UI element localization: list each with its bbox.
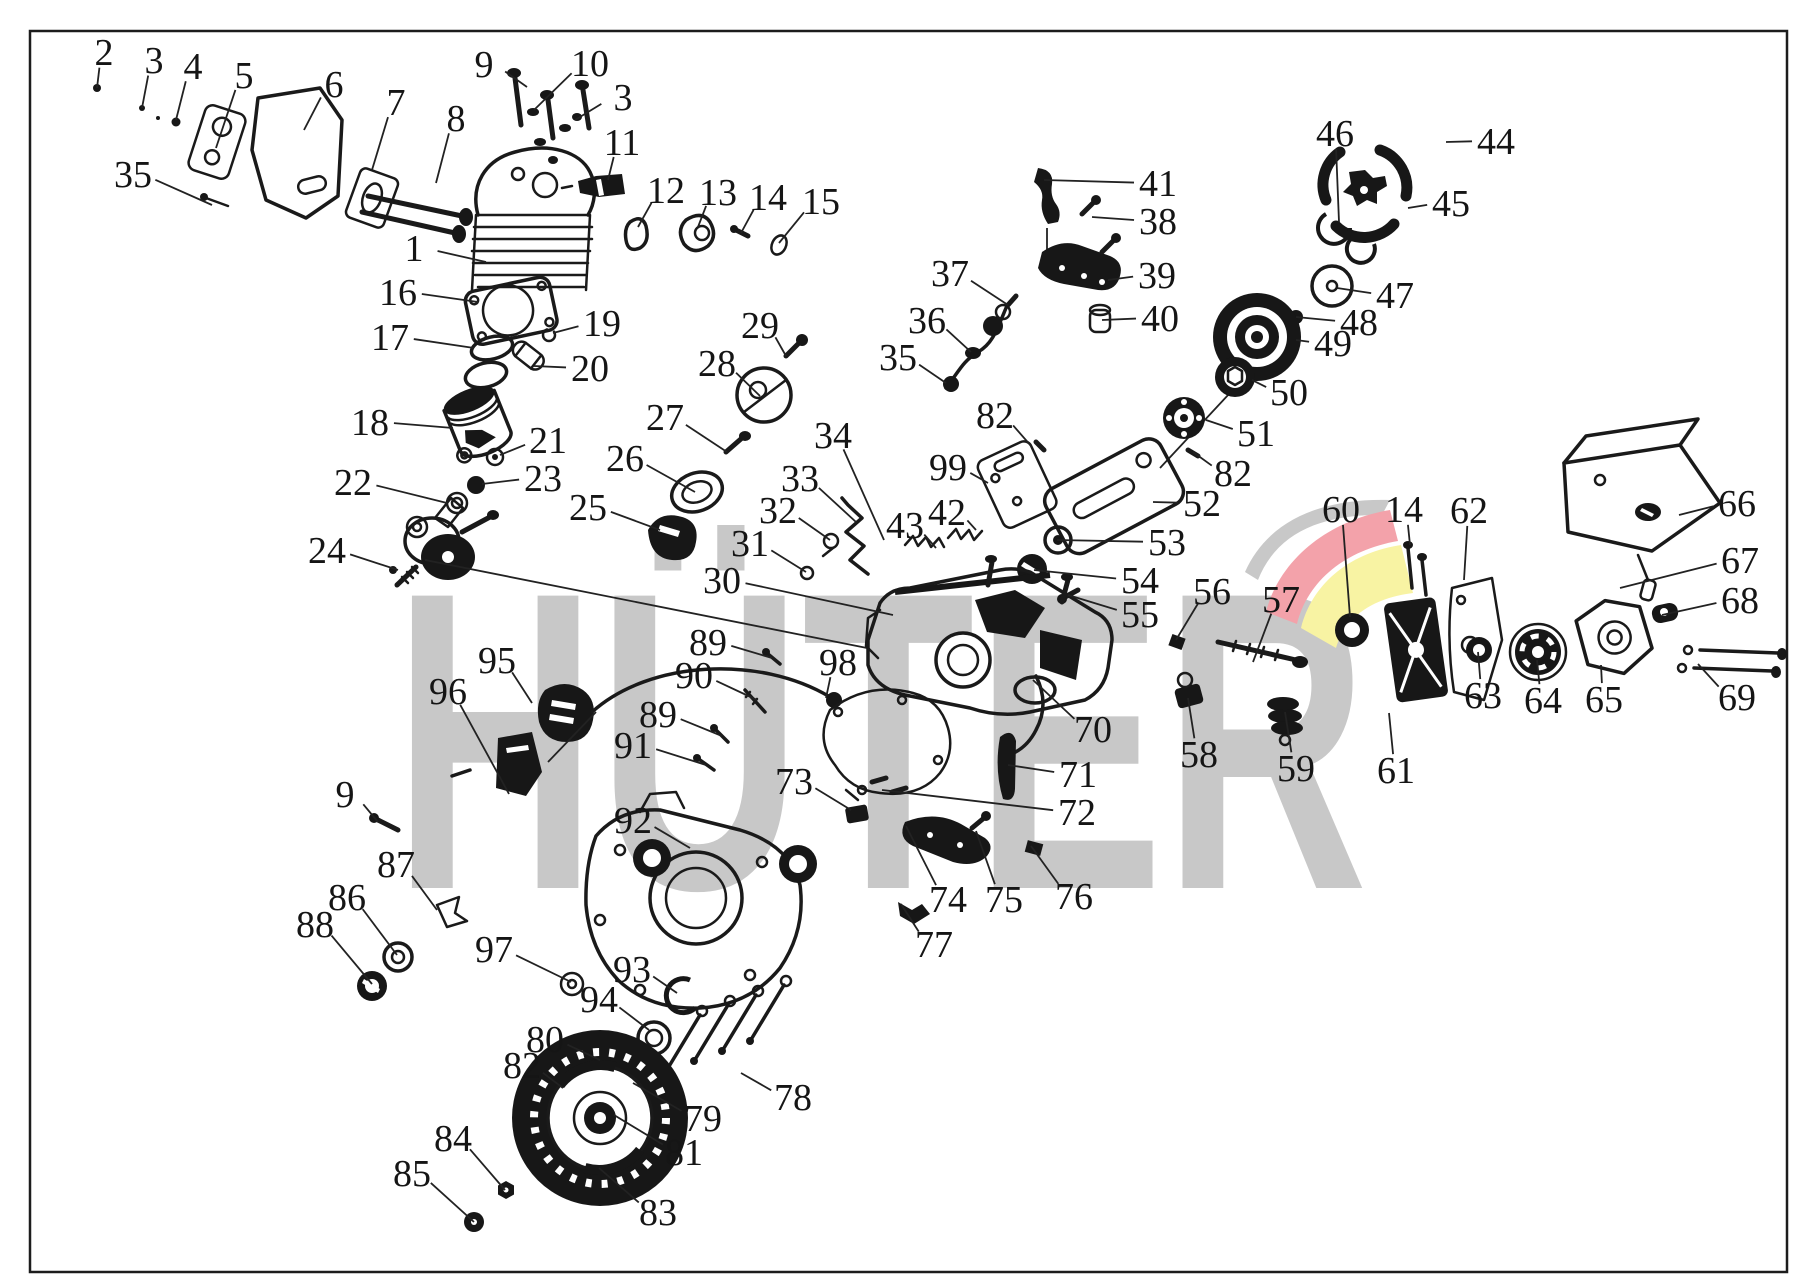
callout-leader-78 xyxy=(741,1073,771,1090)
callout-45: 45 xyxy=(1408,183,1470,225)
callout-leader-35 xyxy=(919,365,946,383)
callout-leader-8 xyxy=(436,133,449,183)
callout-leader-6 xyxy=(304,97,321,130)
callout-number-52: 52 xyxy=(1183,483,1221,525)
callout-number-40: 40 xyxy=(1141,298,1179,340)
callout-17: 17 xyxy=(371,317,474,359)
callout-number-7: 7 xyxy=(387,82,406,124)
callout-leader-22 xyxy=(376,485,447,503)
callout-number-6: 6 xyxy=(325,64,344,106)
callout-number-34: 34 xyxy=(814,415,852,457)
callout-number-47: 47 xyxy=(1376,275,1414,317)
callout-number-8: 8 xyxy=(447,98,466,140)
callout-number-65: 65 xyxy=(1585,679,1623,721)
callout-number-44: 44 xyxy=(1477,121,1515,163)
callout-number-4: 4 xyxy=(184,46,203,88)
callout-85: 85 xyxy=(393,1153,474,1222)
spark-plug-drawing xyxy=(562,174,625,197)
callout-number-10: 10 xyxy=(571,43,609,85)
callout-number-14: 14 xyxy=(1385,489,1423,531)
flywheel-nut-drawing xyxy=(464,1181,514,1232)
callout-leader-84 xyxy=(470,1149,505,1190)
callout-number-31: 31 xyxy=(731,523,769,565)
callout-number-2: 2 xyxy=(95,32,114,74)
callout-leader-67 xyxy=(1620,564,1717,588)
callout-24: 24 xyxy=(308,530,398,572)
callout-leader-61 xyxy=(1389,713,1393,754)
callout-number-73: 73 xyxy=(775,761,813,803)
callout-number-55: 55 xyxy=(1121,594,1159,636)
callout-number-84: 84 xyxy=(434,1118,472,1160)
callout-leader-52 xyxy=(1153,502,1178,503)
callout-leader-44 xyxy=(1446,141,1472,142)
callout-leader-94 xyxy=(619,1007,649,1030)
callout-number-20: 20 xyxy=(571,348,609,390)
callout-number-70: 70 xyxy=(1074,709,1112,751)
callout-leader-85 xyxy=(431,1183,474,1222)
callout-number-16: 16 xyxy=(379,272,417,314)
callout-number-95: 95 xyxy=(478,640,516,682)
callout-leader-47 xyxy=(1337,288,1371,293)
callout-36: 36 xyxy=(908,300,971,352)
fuel-hose-drawing xyxy=(943,296,1016,392)
callout-number-78: 78 xyxy=(774,1077,812,1119)
callout-22: 22 xyxy=(334,462,447,504)
callout-number-99: 99 xyxy=(929,447,967,489)
callout-27: 27 xyxy=(646,397,727,452)
callout-number-15: 15 xyxy=(802,181,840,223)
callout-number-50: 50 xyxy=(1270,372,1308,414)
callout-number-75: 75 xyxy=(985,879,1023,921)
callout-leader-26 xyxy=(647,465,695,492)
callout-12: 12 xyxy=(638,170,685,227)
callout-leader-86 xyxy=(363,909,397,955)
callout-4: 4 xyxy=(176,46,203,120)
callout-28: 28 xyxy=(698,343,760,396)
callout-16: 16 xyxy=(379,272,478,314)
callout-number-27: 27 xyxy=(646,397,684,439)
callout-number-82: 82 xyxy=(503,1045,541,1087)
callout-6: 6 xyxy=(304,64,344,130)
callout-number-17: 17 xyxy=(371,317,409,359)
callout-number-83: 83 xyxy=(639,1192,677,1234)
callout-leader-38 xyxy=(1092,217,1134,220)
callout-number-46: 46 xyxy=(1316,113,1354,155)
callout-2: 2 xyxy=(95,32,114,88)
callout-number-92: 92 xyxy=(614,800,652,842)
callout-26: 26 xyxy=(606,438,695,492)
callout-7: 7 xyxy=(372,82,406,170)
callout-82: 82 xyxy=(976,395,1032,447)
callout-number-57: 57 xyxy=(1262,579,1300,621)
intake-gaskets-drawing xyxy=(626,215,790,257)
callout-number-93: 93 xyxy=(613,949,651,991)
callout-number-71: 71 xyxy=(1059,754,1097,796)
callout-number-98: 98 xyxy=(819,642,857,684)
callout-number-3: 3 xyxy=(614,77,633,119)
callout-number-68: 68 xyxy=(1721,580,1759,622)
callout-number-26: 26 xyxy=(606,438,644,480)
callout-9: 9 xyxy=(336,774,379,822)
callout-38: 38 xyxy=(1092,201,1177,243)
callout-number-19: 19 xyxy=(583,303,621,345)
callout-number-30: 30 xyxy=(703,560,741,602)
callout-number-97: 97 xyxy=(475,929,513,971)
callout-62: 62 xyxy=(1450,490,1488,580)
callout-number-37: 37 xyxy=(931,253,969,295)
callout-18: 18 xyxy=(351,402,453,444)
callout-29: 29 xyxy=(741,305,786,356)
callout-number-14: 14 xyxy=(749,177,787,219)
callout-number-35: 35 xyxy=(879,337,917,379)
callout-number-72: 72 xyxy=(1058,792,1096,834)
callout-number-42: 42 xyxy=(928,492,966,534)
oil-seal-drawing xyxy=(1335,613,1369,647)
callout-61: 61 xyxy=(1377,713,1415,792)
callout-14: 14 xyxy=(741,177,787,233)
callout-leader-62 xyxy=(1464,526,1467,580)
callout-leader-24 xyxy=(350,554,398,570)
callout-number-39: 39 xyxy=(1138,255,1176,297)
callout-number-11: 11 xyxy=(604,122,641,164)
callout-number-58: 58 xyxy=(1180,734,1218,776)
callout-number-56: 56 xyxy=(1193,571,1231,613)
callout-19: 19 xyxy=(553,303,621,345)
callout-66: 66 xyxy=(1679,483,1756,525)
callout-number-85: 85 xyxy=(393,1153,431,1195)
callout-37: 37 xyxy=(931,253,1008,305)
callout-number-81: 81 xyxy=(665,1132,703,1174)
callout-number-9: 9 xyxy=(336,774,355,816)
callout-number-96: 96 xyxy=(429,671,467,713)
callout-number-88: 88 xyxy=(296,904,334,946)
callout-44: 44 xyxy=(1446,121,1515,163)
callout-number-36: 36 xyxy=(908,300,946,342)
callout-number-91: 91 xyxy=(614,725,652,767)
callout-99: 99 xyxy=(929,447,988,489)
callout-leader-36 xyxy=(946,329,971,352)
diagram-canvas: HÜTER xyxy=(0,0,1809,1283)
callout-number-43: 43 xyxy=(886,505,924,547)
callout-number-28: 28 xyxy=(698,343,736,385)
callout-number-90: 90 xyxy=(675,655,713,697)
callout-leader-7 xyxy=(372,117,388,170)
callout-leader-45 xyxy=(1408,205,1427,208)
callout-5: 5 xyxy=(216,55,254,148)
callout-40: 40 xyxy=(1102,298,1179,340)
piston-drawing xyxy=(435,380,515,464)
callout-number-61: 61 xyxy=(1377,750,1415,792)
callout-number-74: 74 xyxy=(929,879,967,921)
callout-number-41: 41 xyxy=(1139,163,1177,205)
callout-number-67: 67 xyxy=(1721,540,1759,582)
callout-number-53: 53 xyxy=(1148,522,1186,564)
callout-number-63: 63 xyxy=(1464,675,1502,717)
callout-number-87: 87 xyxy=(377,844,415,886)
callout-number-77: 77 xyxy=(915,924,953,966)
callout-leader-82 xyxy=(1193,452,1212,466)
callout-leader-27 xyxy=(686,425,727,452)
callout-number-12: 12 xyxy=(647,170,685,212)
callout-number-51: 51 xyxy=(1237,413,1275,455)
callout-number-1: 1 xyxy=(405,228,424,270)
callout-number-69: 69 xyxy=(1718,677,1756,719)
callout-number-82: 82 xyxy=(976,395,1014,437)
callout-number-25: 25 xyxy=(569,487,607,529)
callout-49: 49 xyxy=(1296,323,1352,365)
callout-number-9: 9 xyxy=(475,44,494,86)
callout-11: 11 xyxy=(604,122,641,180)
callout-number-59: 59 xyxy=(1277,748,1315,790)
callout-number-94: 94 xyxy=(580,979,618,1021)
callout-number-23: 23 xyxy=(524,458,562,500)
callout-number-35: 35 xyxy=(114,154,152,196)
callout-number-49: 49 xyxy=(1314,323,1352,365)
callout-51: 51 xyxy=(1206,413,1275,455)
callout-leader-18 xyxy=(394,423,453,428)
callout-leader-1 xyxy=(438,251,486,262)
callout-78: 78 xyxy=(741,1073,812,1119)
callout-69: 69 xyxy=(1698,664,1756,719)
piston-rings-drawing xyxy=(463,332,515,391)
needle-bearing-drawing xyxy=(467,476,485,494)
callout-leader-41 xyxy=(1044,180,1134,183)
callout-8: 8 xyxy=(436,98,466,183)
callout-number-29: 29 xyxy=(741,305,779,347)
callout-3: 3 xyxy=(142,40,164,108)
muffler-plate-drawing xyxy=(187,103,248,181)
callout-leader-40 xyxy=(1102,319,1136,320)
callout-15: 15 xyxy=(779,181,840,243)
callout-number-21: 21 xyxy=(529,420,567,462)
callout-20: 20 xyxy=(534,348,609,390)
callout-leader-35 xyxy=(155,180,212,205)
callout-84: 84 xyxy=(434,1118,505,1190)
callout-number-13: 13 xyxy=(699,172,737,214)
callout-leader-10 xyxy=(534,73,572,110)
callout-number-62: 62 xyxy=(1450,490,1488,532)
callout-number-5: 5 xyxy=(235,55,254,97)
parts-line-art xyxy=(93,68,1787,1232)
callout-leader-51 xyxy=(1206,420,1233,429)
callout-number-64: 64 xyxy=(1524,680,1562,722)
callout-10: 10 xyxy=(534,43,609,110)
callout-41: 41 xyxy=(1044,163,1177,205)
exploded-parts-diagram: HÜTER xyxy=(0,0,1809,1283)
callout-9: 9 xyxy=(475,44,528,87)
callout-number-66: 66 xyxy=(1718,483,1756,525)
cylinder-drawing xyxy=(472,148,594,290)
muffler-cover-drawing xyxy=(252,88,342,218)
throttle-assembly-drawing xyxy=(1034,168,1121,332)
callout-13: 13 xyxy=(698,172,737,227)
callout-number-38: 38 xyxy=(1139,201,1177,243)
callout-leader-17 xyxy=(414,339,474,348)
callout-leader-37 xyxy=(971,281,1008,305)
callout-number-60: 60 xyxy=(1322,489,1360,531)
callout-number-3: 3 xyxy=(145,40,164,82)
callout-number-18: 18 xyxy=(351,402,389,444)
callout-number-45: 45 xyxy=(1432,183,1470,225)
callout-leader-19 xyxy=(553,326,578,333)
callout-number-22: 22 xyxy=(334,462,372,504)
callout-35: 35 xyxy=(879,337,946,383)
callout-leader-50 xyxy=(1252,380,1266,387)
callout-leader-88 xyxy=(332,936,372,984)
callout-number-76: 76 xyxy=(1055,876,1093,918)
callout-35: 35 xyxy=(114,154,212,205)
callout-number-24: 24 xyxy=(308,530,346,572)
callout-leader-23 xyxy=(482,480,519,484)
